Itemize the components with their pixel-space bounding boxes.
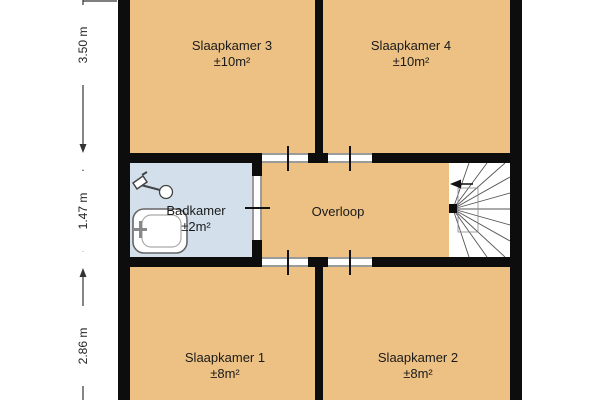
- dimension-label-bottom: 2.86 m: [76, 306, 90, 386]
- wall-exterior-right: [510, 0, 522, 400]
- floorplan-canvas: 3.50 m 1.47 m 2.86 m Slaapkamer 3 ±10m² …: [0, 0, 600, 400]
- room-area: ±2m²: [136, 219, 256, 235]
- room-slaapkamer-3: [130, 0, 315, 153]
- room-name: Slaapkamer 3: [132, 38, 332, 54]
- door-opening-slaapkamer-3: [262, 153, 308, 163]
- label-slaapkamer-3: Slaapkamer 3 ±10m²: [132, 38, 332, 70]
- wall-horizontal-upper: [118, 153, 522, 163]
- room-area: ±10m²: [132, 54, 332, 70]
- dim-arrow-up-2: [80, 268, 87, 277]
- door-opening-slaapkamer-1: [262, 257, 308, 267]
- label-overloop: Overloop: [268, 204, 408, 220]
- winder-staircase-icon: [449, 163, 510, 257]
- room-name: Slaapkamer 4: [311, 38, 511, 54]
- dimension-label-top: 3.50 m: [76, 5, 90, 85]
- room-name: Overloop: [268, 204, 408, 220]
- room-slaapkamer-4: [323, 0, 510, 153]
- room-area: ±8m²: [125, 366, 325, 382]
- label-badkamer: Badkamer ±2m²: [136, 203, 256, 235]
- dimension-label-middle: 1.47 m: [76, 171, 90, 251]
- door-tick-slaapkamer-4: [349, 146, 351, 171]
- room-area: ±8m²: [318, 366, 518, 382]
- label-slaapkamer-2: Slaapkamer 2 ±8m²: [318, 350, 518, 382]
- label-slaapkamer-4: Slaapkamer 4 ±10m²: [311, 38, 511, 70]
- door-tick-slaapkamer-2: [349, 250, 351, 275]
- door-tick-slaapkamer-1: [287, 250, 289, 275]
- door-tick-slaapkamer-3: [287, 146, 289, 171]
- dim-arrow-down-1: [80, 144, 87, 153]
- shower-head-icon: [133, 172, 173, 199]
- room-area: ±10m²: [311, 54, 511, 70]
- label-slaapkamer-1: Slaapkamer 1 ±8m²: [125, 350, 325, 382]
- room-name: Slaapkamer 1: [125, 350, 325, 366]
- stair-hub: [449, 204, 457, 213]
- wall-exterior-left: [118, 0, 130, 400]
- room-name: Slaapkamer 2: [318, 350, 518, 366]
- wall-divider-slaapkamer-3-4: [315, 0, 323, 153]
- room-name: Badkamer: [136, 203, 256, 219]
